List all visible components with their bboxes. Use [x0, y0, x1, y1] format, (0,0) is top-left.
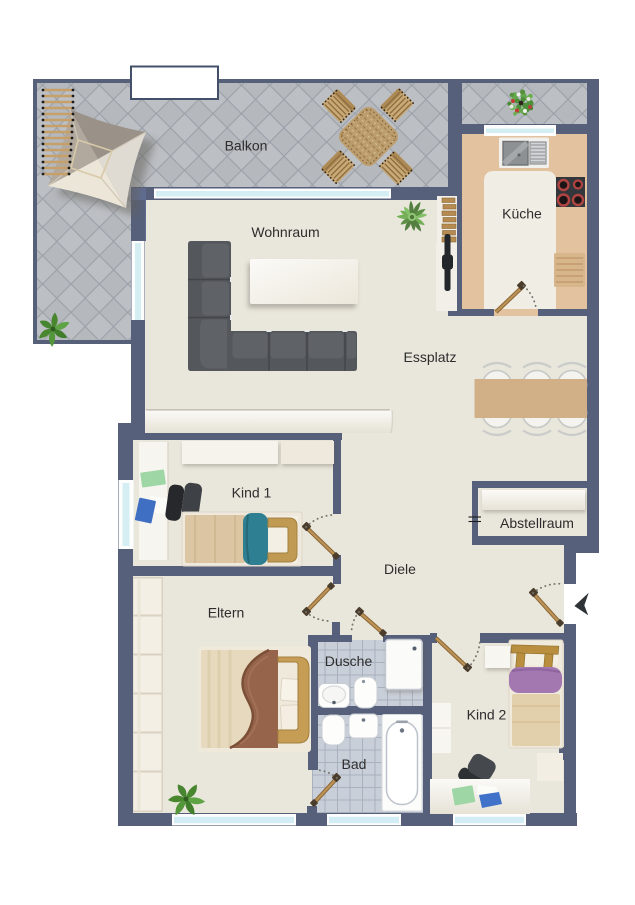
svg-text:Bad: Bad: [342, 756, 367, 772]
svg-text:Kind 1: Kind 1: [232, 485, 272, 501]
svg-text:Diele: Diele: [384, 561, 416, 577]
svg-text:Eltern: Eltern: [208, 605, 245, 621]
svg-text:Küche: Küche: [502, 206, 542, 222]
svg-text:Abstellraum: Abstellraum: [500, 515, 574, 531]
svg-text:Balkon: Balkon: [225, 138, 268, 154]
svg-text:Kind 2: Kind 2: [467, 707, 507, 723]
svg-text:Essplatz: Essplatz: [404, 349, 457, 365]
svg-text:Wohnraum: Wohnraum: [251, 224, 319, 240]
svg-text:Dusche: Dusche: [325, 653, 373, 669]
